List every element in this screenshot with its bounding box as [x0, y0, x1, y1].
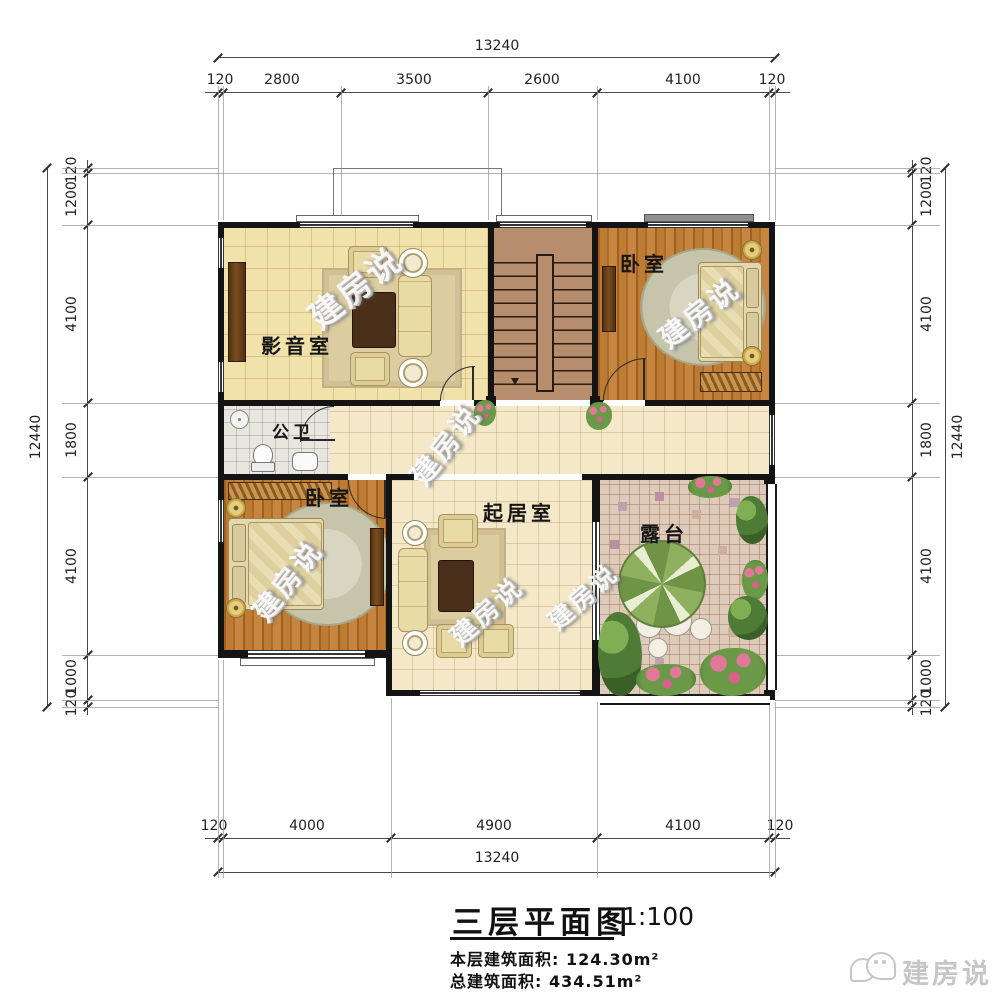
wall-living-bottom	[391, 690, 420, 696]
dim-line	[205, 838, 790, 839]
extension-line	[218, 86, 219, 220]
living-side-table	[402, 520, 428, 546]
hallway-right-window	[769, 415, 775, 465]
extension-line	[775, 702, 776, 878]
wechat-icon-eye	[882, 960, 886, 964]
media-room-window	[300, 222, 413, 228]
bedroomBL-window	[248, 650, 365, 658]
bathroom-label: 公卫	[272, 418, 314, 443]
bedroomTR-tv-cabinet	[602, 266, 616, 332]
wall-living-right-upper	[592, 480, 600, 522]
living-side-table	[402, 630, 428, 656]
bedroomTR-window	[648, 222, 748, 228]
media-room-label: 影音室	[261, 330, 333, 359]
terrace-railing-right	[766, 484, 777, 690]
dim-line	[218, 872, 775, 873]
dim-line	[205, 92, 790, 93]
bedroomTR-nightstand	[742, 346, 762, 366]
extension-line	[769, 702, 770, 878]
toilet-tank	[251, 462, 275, 472]
extension-line	[62, 655, 218, 656]
terrace-plant	[736, 496, 768, 544]
bedroomTR-pillow	[746, 268, 759, 308]
wall-left	[218, 222, 224, 656]
dim-tick	[770, 53, 780, 63]
media-tv-cabinet	[228, 262, 246, 362]
terrace-chair	[690, 618, 712, 640]
extension-line	[775, 225, 940, 226]
dim-label: 4100	[919, 548, 935, 584]
dim-label: 12440	[28, 415, 44, 460]
floor-area-line: 本层建筑面积: 124.30m²	[450, 946, 659, 970]
dim-label: 120	[64, 690, 80, 717]
floor-area-value: 124.30m²	[566, 950, 659, 969]
dim-line	[218, 57, 775, 58]
shower-head	[230, 410, 249, 429]
dim-label: 120	[207, 72, 234, 88]
dim-label: 3500	[396, 72, 432, 88]
extension-line	[62, 477, 218, 478]
stair-direction-arrow	[511, 378, 519, 385]
terrace-plant	[728, 596, 768, 640]
dim-label: 2800	[264, 72, 300, 88]
sheet-title: 三层平面图	[452, 897, 632, 942]
wall-bedroomBL-bottom	[218, 650, 248, 658]
bedroomBL-pillow	[232, 524, 246, 562]
bedroomBL-nightstand	[226, 498, 246, 518]
extension-line	[223, 86, 224, 220]
wall-right-upper	[769, 222, 775, 415]
bedroomBL-label: 卧室	[305, 482, 353, 511]
dim-line	[47, 168, 48, 707]
wall-terrace-top	[582, 474, 775, 480]
floor-plan-sheet: 13240 120 2800 3500 2600 4100 120 12440 …	[0, 0, 1000, 1003]
dim-label: 12440	[950, 415, 966, 460]
dim-label: 4100	[665, 72, 701, 88]
dim-tick	[213, 53, 223, 63]
living-room-label: 起居室	[483, 497, 555, 526]
dim-label: 120	[759, 72, 786, 88]
living-armchair	[438, 514, 478, 548]
bedroomBL-door-leaf	[384, 480, 386, 518]
bedroomTR-label: 卧室	[620, 248, 668, 277]
extension-line	[62, 700, 218, 701]
bedroomBL-tv-cabinet	[370, 528, 384, 606]
extension-line	[218, 660, 219, 878]
dim-label: 2600	[524, 72, 560, 88]
dim-label: 13240	[475, 850, 520, 866]
dim-label: 4100	[64, 548, 80, 584]
dim-label: 1200	[919, 181, 935, 217]
bedroomTR-door-leaf	[643, 358, 645, 400]
wall-bedroomTR-bottom	[645, 400, 775, 406]
media-plant-stand	[398, 358, 428, 388]
media-room-door-leaf	[472, 366, 474, 400]
dim-label: 13240	[475, 38, 520, 54]
window-sill	[644, 214, 754, 222]
bedroomTR-wardrobe	[700, 372, 762, 392]
title-underline	[450, 937, 614, 940]
dim-label: 1200	[64, 181, 80, 217]
terrace-chair	[648, 638, 668, 658]
extension-line	[62, 225, 218, 226]
dim-label: 120	[919, 157, 935, 184]
media-left-window	[218, 362, 224, 392]
dim-label: 1800	[919, 422, 935, 458]
extension-line	[775, 477, 940, 478]
terrace-label: 露台	[640, 518, 688, 547]
extension-line	[775, 700, 940, 701]
extension-line	[391, 698, 392, 878]
living-sofa	[398, 548, 428, 632]
dim-label: 4000	[289, 818, 325, 834]
terrace-plant	[598, 612, 642, 696]
sink	[292, 452, 318, 471]
stair-treads-left	[494, 250, 536, 390]
media-left-window	[218, 238, 224, 268]
wall-media-bottom	[218, 400, 440, 406]
extension-line	[769, 86, 770, 220]
dim-label: 120	[919, 690, 935, 717]
extension-line	[775, 655, 940, 656]
dim-line	[912, 160, 913, 715]
sheet-scale: 1:100	[622, 902, 694, 931]
total-area-line: 总建筑面积: 434.51m²	[450, 968, 642, 992]
extension-line	[62, 403, 218, 404]
extension-line	[62, 707, 218, 708]
wall-hall-bottom-left	[218, 474, 348, 480]
window-sill	[496, 215, 592, 222]
terrace-railing-bottom	[600, 694, 770, 705]
terrace-umbrella	[618, 540, 706, 628]
stair-window	[500, 222, 586, 228]
bedroomBL-left-window	[218, 500, 224, 542]
bedroomTR-nightstand	[742, 240, 762, 260]
extension-line	[223, 660, 224, 878]
extension-line	[775, 403, 940, 404]
dim-label: 120	[64, 157, 80, 184]
dim-label: 120	[767, 818, 794, 834]
dim-label: 4100	[919, 296, 935, 332]
dim-label: 4100	[665, 818, 701, 834]
extension-line	[597, 86, 598, 220]
dim-line	[87, 160, 88, 715]
wall-terrace-corner	[764, 474, 775, 484]
brand-name: 建房说	[902, 952, 992, 991]
extension-line	[775, 86, 776, 220]
dim-label: 4900	[476, 818, 512, 834]
total-area-label: 总建筑面积:	[450, 972, 542, 991]
media-sofa	[398, 275, 432, 357]
wall-stair-right	[592, 222, 598, 406]
extension-line	[775, 168, 940, 169]
floor-area-label: 本层建筑面积:	[450, 950, 559, 969]
wechat-icon-eye	[874, 960, 878, 964]
stair-divider	[536, 254, 554, 392]
living-room-window	[420, 690, 580, 696]
window-sill	[296, 215, 419, 222]
window-sill	[240, 658, 375, 666]
dim-label: 1800	[64, 422, 80, 458]
extension-line	[597, 702, 598, 878]
wall-stair-left	[488, 222, 494, 406]
dim-line	[945, 168, 946, 707]
extension-line	[62, 168, 218, 169]
extension-line	[775, 707, 940, 708]
total-area-value: 434.51m²	[549, 972, 642, 991]
wechat-icon	[866, 952, 896, 980]
dim-label: 4100	[64, 296, 80, 332]
media-armchair	[350, 352, 390, 386]
stair-treads-right	[550, 250, 592, 390]
